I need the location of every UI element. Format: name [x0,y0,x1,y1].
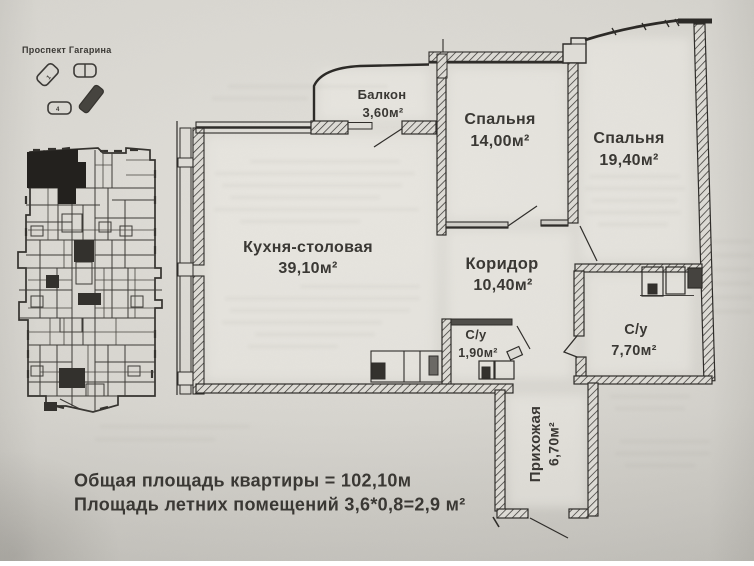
svg-text:С/у: С/у [465,327,487,342]
svg-text:Балкон: Балкон [358,87,407,102]
svg-text:С/у: С/у [624,322,647,338]
svg-text:Коридор: Коридор [465,255,538,273]
svg-text:14,00м²: 14,00м² [470,133,529,150]
svg-text:Проспект Гагарина: Проспект Гагарина [22,45,112,55]
svg-text:Спальня: Спальня [464,111,535,128]
svg-text:7,70м²: 7,70м² [611,343,657,359]
svg-text:3,60м²: 3,60м² [362,105,403,120]
svg-text:Спальня: Спальня [593,130,664,147]
svg-text:6,70м²: 6,70м² [546,422,562,466]
svg-text:Кухня-столовая: Кухня-столовая [243,239,373,256]
svg-text:Общая площадь квартиры = 102,1: Общая площадь квартиры = 102,10м [74,471,411,491]
svg-text:Прихожая: Прихожая [527,406,544,482]
svg-text:19,40м²: 19,40м² [599,152,658,169]
svg-text:4: 4 [56,107,60,113]
svg-text:1,90м²: 1,90м² [458,346,498,360]
svg-text:Площадь летних помещений 3,6*0: Площадь летних помещений 3,6*0,8=2,9 м² [74,495,466,515]
svg-text:10,40м²: 10,40м² [473,277,532,294]
svg-text:39,10м²: 39,10м² [278,260,337,277]
